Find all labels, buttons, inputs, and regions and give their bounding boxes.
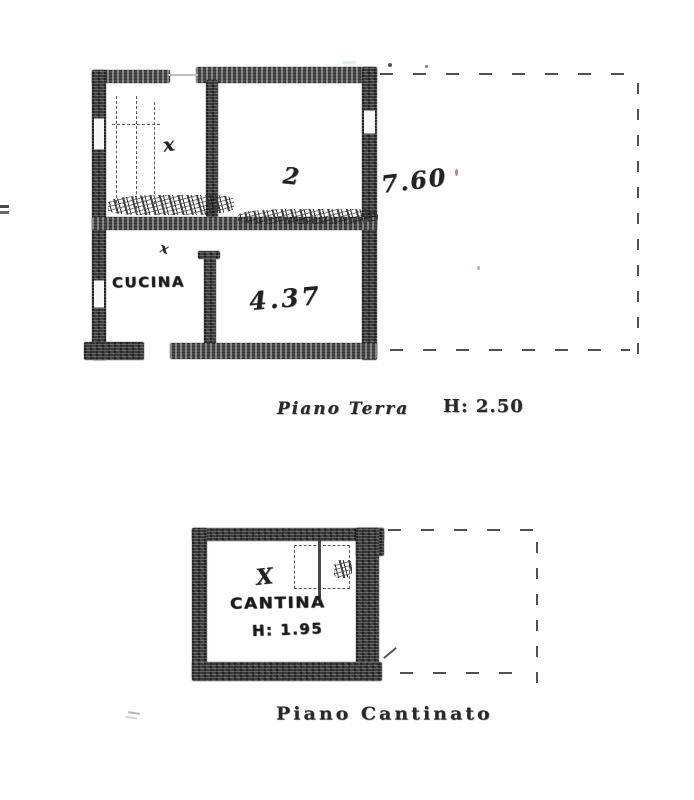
gf-caption-title: Piano Terra xyxy=(277,399,409,419)
gf-scribble-band-left xyxy=(108,195,234,215)
gf-depth-dimension: 7.60 xyxy=(379,162,448,199)
bs-cellar-label: CANTINA xyxy=(230,593,326,614)
gf-kitchen-label: CUCINA xyxy=(112,274,185,292)
gf-partition-lower-cap xyxy=(198,251,220,259)
scan-red-speck-1 xyxy=(455,169,458,176)
gf-kitchen-door-mark: x xyxy=(158,240,170,257)
ground-floor-plan: x 2 7.60 x CUCINA 4.37 Piano Terra H: 2.… xyxy=(0,0,694,460)
gf-left-wall xyxy=(92,70,106,360)
gf-caption-height: H: 2.50 xyxy=(443,396,524,417)
bs-dashed-right-line xyxy=(536,533,538,683)
gf-left-window-lower xyxy=(94,280,104,308)
gf-bottom-wall-left xyxy=(84,342,144,360)
bs-dashed-top-line xyxy=(388,529,534,531)
gf-top-wall-opening xyxy=(168,74,198,76)
gf-partition-lower xyxy=(204,254,216,356)
gf-top-wall-right xyxy=(196,67,377,83)
gf-scribble-band-right xyxy=(238,209,378,224)
bs-niche-divider xyxy=(318,540,321,598)
gf-left-window-upper xyxy=(94,118,104,150)
left-edge-mark xyxy=(0,205,9,208)
gf-right-wall-opening xyxy=(364,110,375,134)
gf-dashed-top-line xyxy=(380,73,642,75)
scan-blue-smudge xyxy=(342,61,356,64)
scan-red-speck-2 xyxy=(477,266,480,270)
gf-living-room-mark: 2 xyxy=(282,162,301,191)
bs-niche-blob xyxy=(334,560,352,578)
bs-right-wall xyxy=(356,528,379,680)
gf-dashed-right-line xyxy=(637,76,639,354)
gf-stair-dash-cross xyxy=(112,124,160,125)
scanned-floorplan-page: x 2 7.60 x CUCINA 4.37 Piano Terra H: 2.… xyxy=(0,0,694,800)
bs-left-wall xyxy=(192,528,207,680)
gf-upper-room-mark: x xyxy=(162,133,176,156)
bs-room-mark: X xyxy=(255,563,275,591)
gf-stair-dash-2 xyxy=(136,96,137,214)
gf-stair-dash-1 xyxy=(116,96,117,208)
gf-bottom-wall-right xyxy=(170,343,377,359)
bs-caption-title: Piano Cantinato xyxy=(276,704,493,725)
scan-grey-squiggle xyxy=(128,711,140,715)
bs-corner-tick xyxy=(383,647,397,659)
bs-dashed-bottom-line xyxy=(400,672,518,674)
scan-speck-1 xyxy=(388,63,392,67)
basement-plan: X CANTINA H: 1.95 Piano Cantinato xyxy=(0,460,694,800)
scan-speck-2 xyxy=(425,65,428,68)
gf-stair-dash-3 xyxy=(154,102,155,214)
bs-height-dimension: H: 1.95 xyxy=(252,620,324,640)
gf-width-dimension: 4.37 xyxy=(248,281,323,316)
gf-dashed-bottom-line xyxy=(390,349,630,351)
bs-bottom-wall xyxy=(192,662,382,681)
